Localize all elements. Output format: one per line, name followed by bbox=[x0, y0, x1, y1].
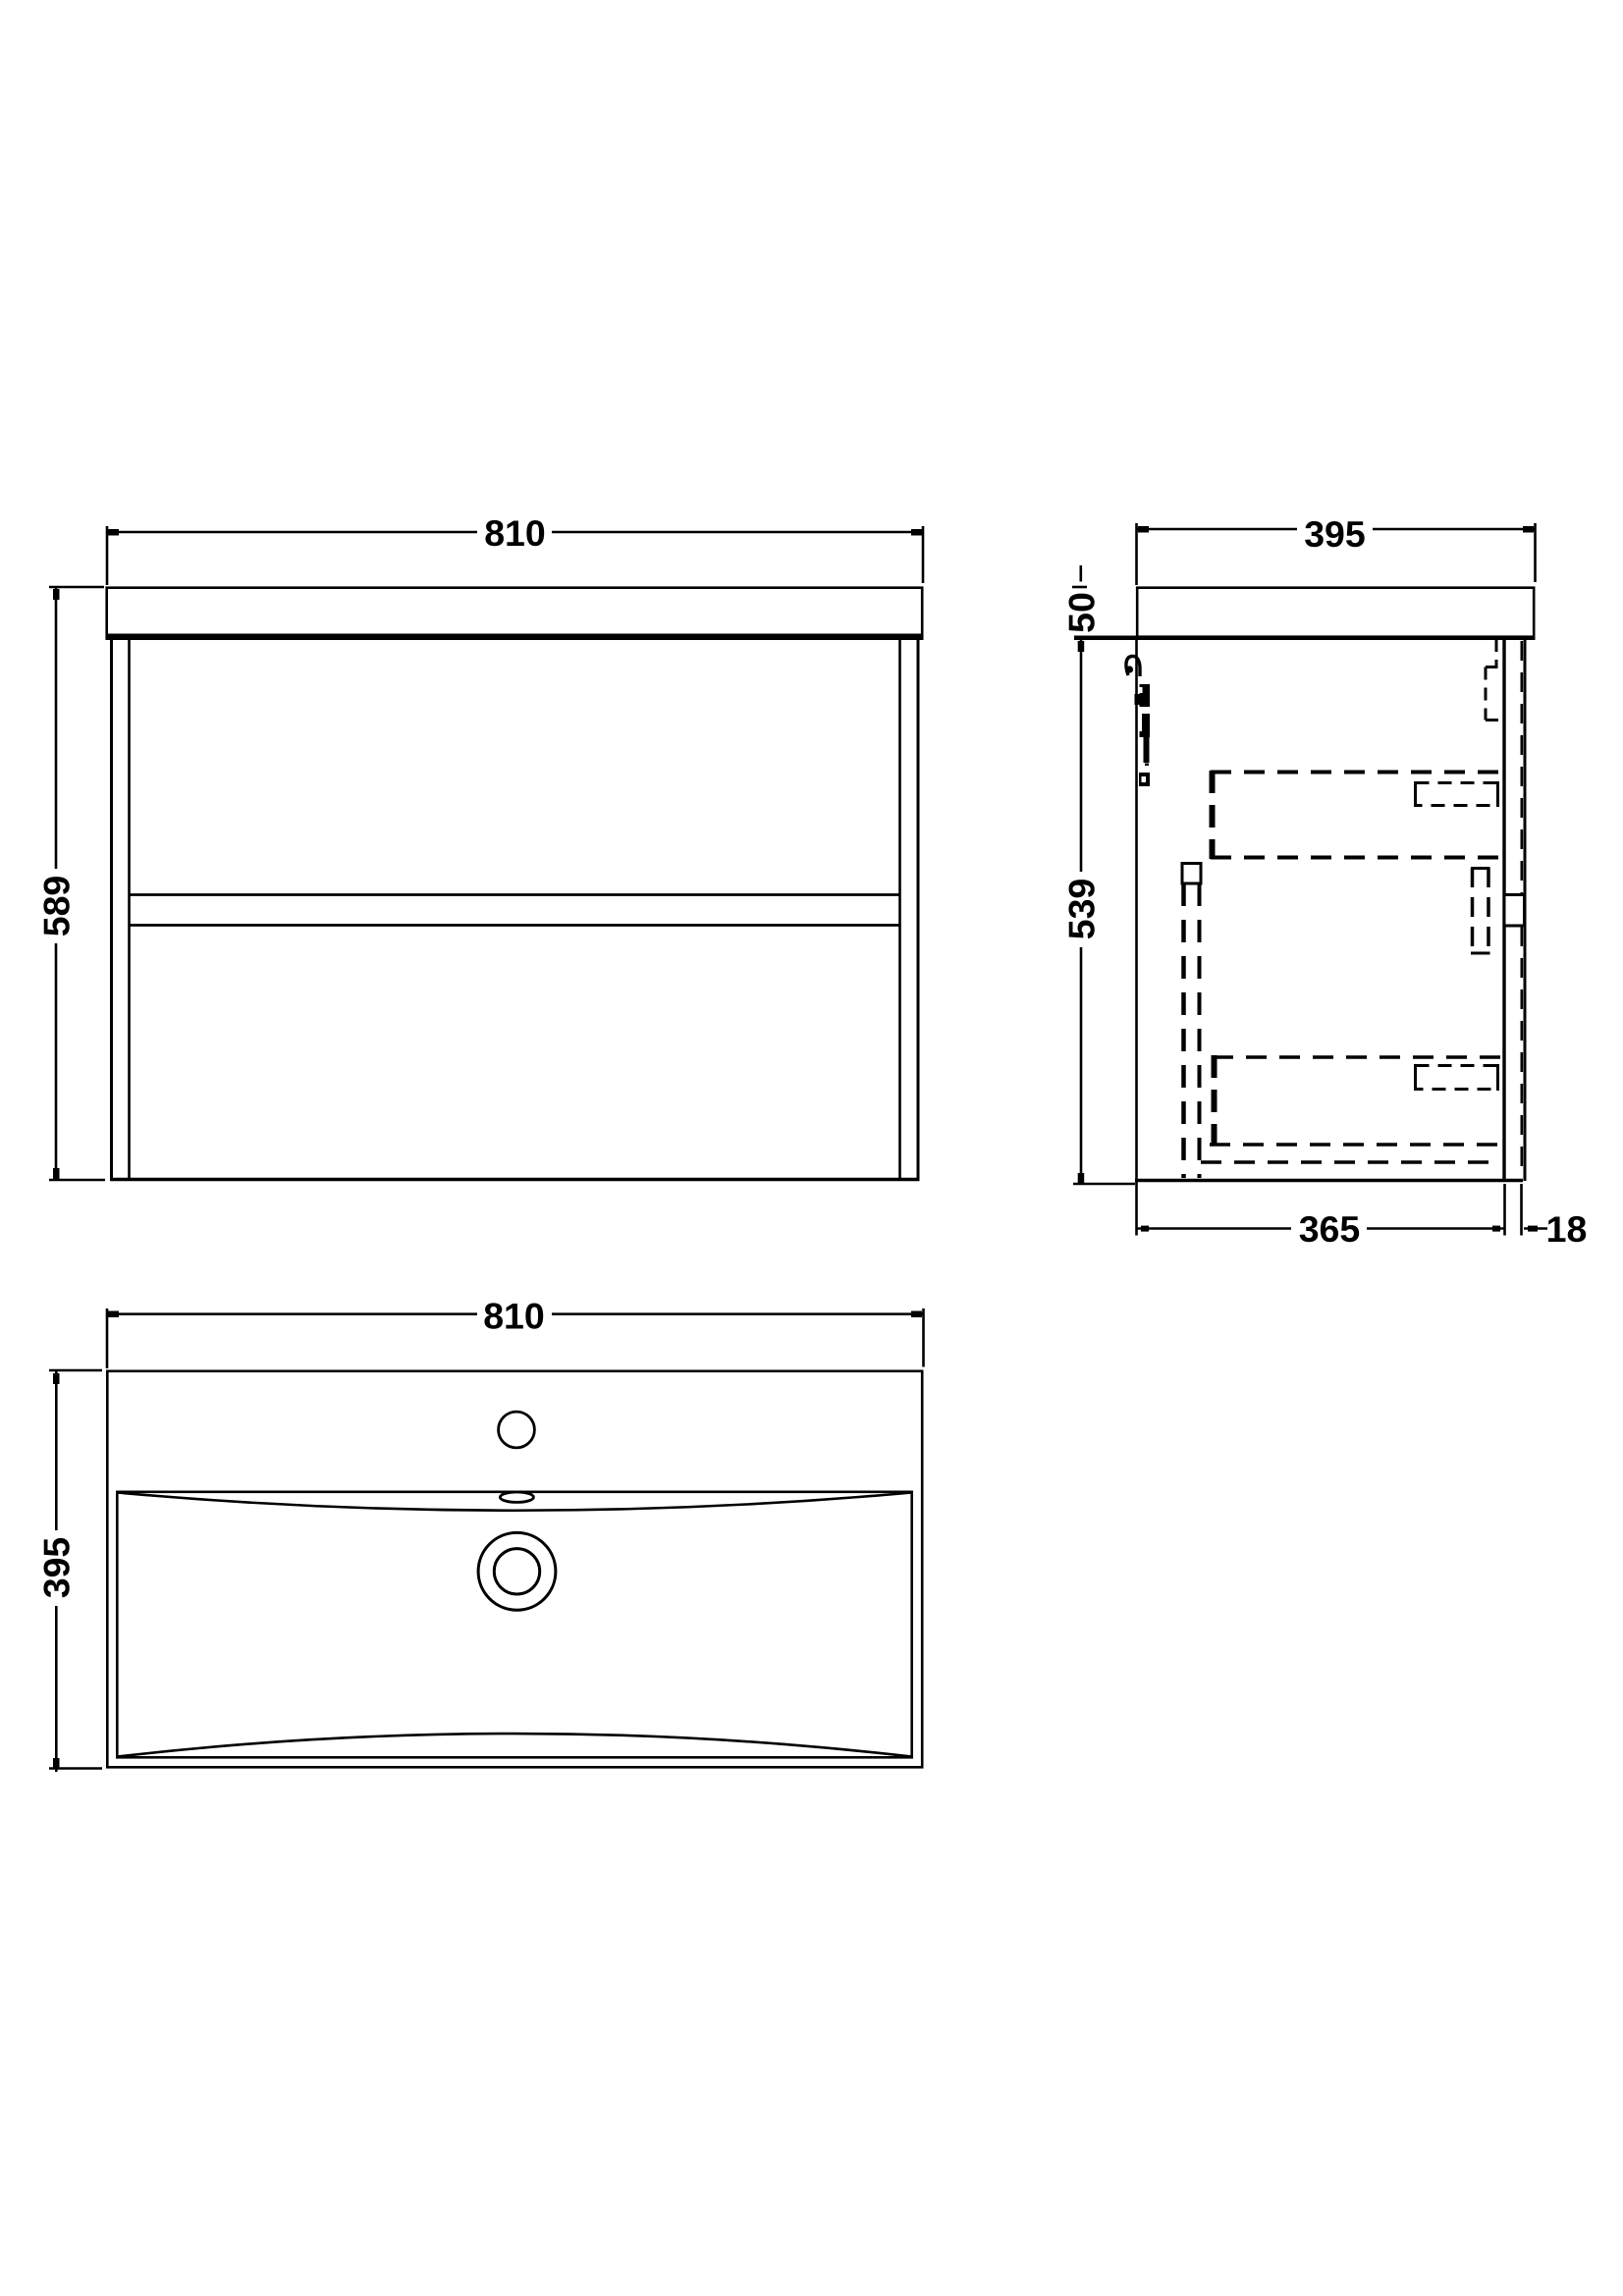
svg-text:50: 50 bbox=[1060, 592, 1102, 633]
svg-text:18: 18 bbox=[1546, 1208, 1588, 1250]
svg-text:810: 810 bbox=[483, 1296, 545, 1337]
svg-text:365: 365 bbox=[1299, 1208, 1361, 1250]
svg-text:395: 395 bbox=[1304, 513, 1366, 555]
svg-text:539: 539 bbox=[1061, 879, 1103, 940]
svg-text:589: 589 bbox=[36, 876, 78, 937]
svg-text:395: 395 bbox=[35, 1537, 77, 1599]
svg-text:810: 810 bbox=[484, 512, 546, 554]
